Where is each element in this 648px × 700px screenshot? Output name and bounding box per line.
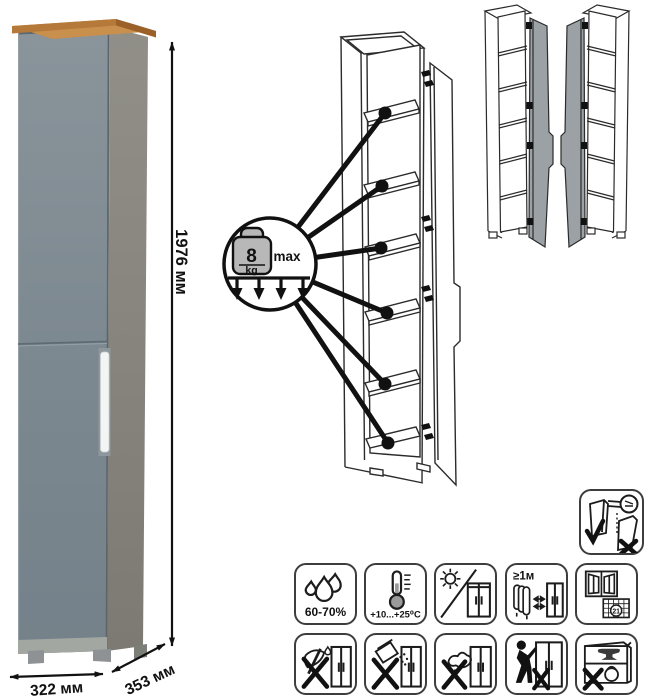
open-cabinet-drawing <box>341 32 460 485</box>
cabinet-door <box>18 27 110 654</box>
person-glyph <box>516 641 536 683</box>
kettlebell-glyph <box>605 667 618 681</box>
x-mark <box>374 660 397 688</box>
distance-label: ≥1м <box>513 571 534 583</box>
wardrobe-glyph <box>471 647 491 687</box>
door-handle <box>99 348 111 456</box>
wardrobe-glyph <box>547 583 563 616</box>
variant-right-hinged <box>485 5 553 247</box>
heater-distance-icon: ≥1м <box>505 563 568 625</box>
door-variant-drawings <box>473 2 648 254</box>
drawing-foot <box>417 463 430 472</box>
no-heavy-load-icon <box>575 633 638 695</box>
variant-left-hinged <box>561 5 629 247</box>
max-load-callout: 8 kg max <box>224 218 316 310</box>
temperature-icon: +10...+25⁰C <box>364 563 427 625</box>
height-label: 1976 мм <box>172 229 190 295</box>
wall-anchor-icon <box>579 489 644 555</box>
width-dimension: 322 мм <box>10 674 103 700</box>
no-direct-sunlight-icon <box>434 563 497 625</box>
calendar-day-label: 21 <box>612 608 620 615</box>
max-label: max <box>273 249 301 264</box>
product-photo: 1976 мм 322 мм 353 мм <box>0 0 240 700</box>
humidity-icon: 60-70% <box>294 563 357 625</box>
ventilation-icon: 21 <box>575 563 638 625</box>
drawing-foot <box>370 468 383 476</box>
width-label: 322 мм <box>30 679 84 700</box>
weight-unit: kg <box>245 265 257 277</box>
open-window-glyph <box>586 571 617 596</box>
wardrobe-glyph <box>331 647 350 687</box>
cabinet-side-panel <box>107 27 148 651</box>
no-dragging-icon <box>505 633 568 695</box>
temperature-label: +10...+25⁰C <box>370 608 421 619</box>
shelf-load-diagram: 8 kg max <box>213 10 475 502</box>
radiator-glyph <box>514 585 530 619</box>
no-wet-cleaning-icon <box>434 633 497 695</box>
wardrobe-glyph <box>468 583 490 616</box>
humidity-label: 60-70% <box>305 605 347 619</box>
furniture-instruction-sheet: 1976 мм 322 мм 353 мм <box>0 0 648 700</box>
depth-label: 353 мм <box>122 661 177 699</box>
no-sharp-tools-icon <box>294 633 357 695</box>
calendar-glyph: 21 <box>603 599 629 617</box>
wardrobe-glyph <box>401 647 420 687</box>
spacing-arrows <box>534 597 544 609</box>
no-abrasive-cleaners-icon <box>364 633 427 695</box>
height-dimension: 1976 мм <box>172 42 190 646</box>
cabinet-render <box>12 19 156 664</box>
